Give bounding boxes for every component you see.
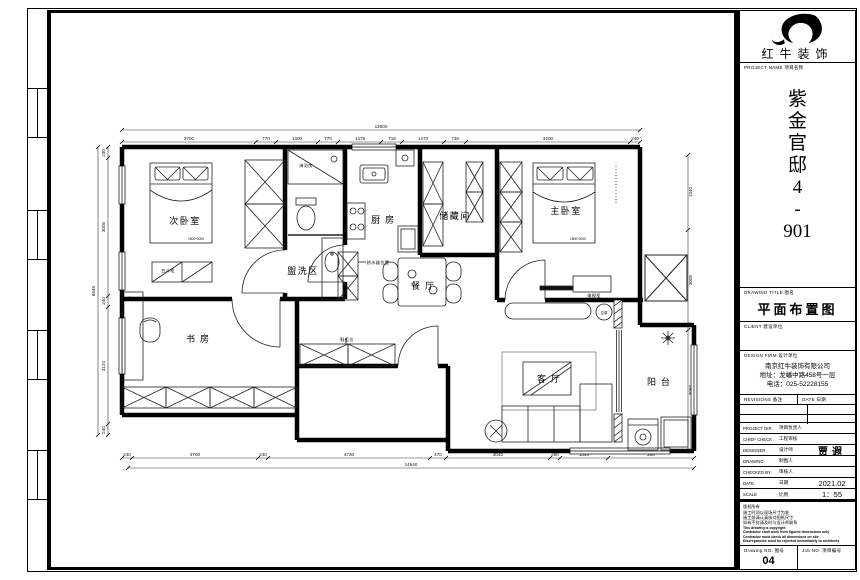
firm-phone: 电话：025-52228155 xyxy=(740,380,855,389)
row-project-dir: PROJECT DIR.项目负责人 xyxy=(740,423,855,434)
svg-text:3200: 3200 xyxy=(543,136,554,141)
svg-text:1470: 1470 xyxy=(418,136,429,141)
stove xyxy=(347,203,365,239)
revisions-header: REVISIONS 备注 DATE 日期 xyxy=(740,395,855,405)
row-designer: DESIGNER设计师贾遐 xyxy=(740,445,855,456)
elevator-shaft xyxy=(645,255,687,301)
study-desk xyxy=(122,292,160,380)
dim-top-total: 13000 xyxy=(375,124,388,129)
logo-section: 红牛装饰 xyxy=(740,11,855,63)
label-chest: 五斗柜 xyxy=(161,267,174,274)
svg-text:770: 770 xyxy=(262,136,270,141)
project-name: 紫 金 官 邸 4 - 901 xyxy=(740,89,855,283)
bed-master xyxy=(533,163,595,243)
notes-section: 版权所有 施工时须以现场尺寸为准 施工前请认真核对图纸尺寸 如有不符请及时与设计… xyxy=(740,500,855,546)
sofa xyxy=(502,384,612,442)
firm-address: 地址：龙蟠中路458号一层 xyxy=(740,371,855,380)
tv-cabinet-master xyxy=(540,276,611,292)
svg-text:240: 240 xyxy=(259,452,267,457)
client-section: CLIENT 建设单位 xyxy=(740,322,855,352)
svg-text:3700: 3700 xyxy=(184,136,195,141)
label-desk: 写字台 xyxy=(127,295,140,302)
shower xyxy=(288,150,343,184)
drawing-number: 04 xyxy=(740,555,797,567)
room-study: 书房 xyxy=(186,333,214,344)
designer-signature: 贾遐 xyxy=(809,443,855,458)
svg-text:748: 748 xyxy=(451,136,459,141)
room-living: 客厅 xyxy=(537,373,565,384)
drawing-title-section: DRAWING TITLE 图名 平面布置图 xyxy=(740,288,855,322)
svg-text:470: 470 xyxy=(434,452,442,457)
svg-text:240: 240 xyxy=(101,297,106,305)
design-firm-label: DESIGN FIRM 设计单位 xyxy=(740,351,855,359)
bookshelf xyxy=(122,387,297,408)
design-firm-info: 南京红牛装饰有限公司 地址：龙蟠中路458号一层 电话：025-52228155 xyxy=(740,362,855,389)
label-tvcab: 电视柜 xyxy=(587,292,600,299)
row-drawing: DRAWING制图人 xyxy=(740,456,855,467)
scale-value: 1：55 xyxy=(809,489,855,500)
bull-logo-icon xyxy=(770,13,826,45)
design-firm-section: DESIGN FIRM 设计单位 南京红牛装饰有限公司 地址：龙蟠中路458号一… xyxy=(740,351,855,395)
room-balcony: 阳台 xyxy=(647,376,675,387)
wardrobe-master xyxy=(500,162,522,252)
revisions-section: REVISIONS 备注 DATE 日期 xyxy=(740,395,855,423)
svg-text:3005: 3005 xyxy=(688,274,693,285)
binding-cell xyxy=(28,330,47,380)
dim-bottom-total: 14640 xyxy=(405,462,418,467)
company-logo-text: 红牛装饰 xyxy=(761,45,833,62)
label-bed2-size: 1500*2000 xyxy=(188,237,204,241)
room-dining: 餐厅 xyxy=(411,280,439,291)
shoe-cabinet xyxy=(300,338,395,366)
washing-machine xyxy=(628,419,658,450)
room-wash: 盥洗区 xyxy=(287,265,319,276)
project-section: PROJECT NAME 项目名称 紫 金 官 邸 4 - 901 xyxy=(740,63,855,288)
label-ac: 空调 xyxy=(601,310,608,315)
drawing-sheet: 13000 3700 770 1400 770 1475 718 1470 74… xyxy=(0,0,860,580)
row-date: DATE日期2021.02 xyxy=(740,478,855,489)
row-scale: SCALE比例1：55 xyxy=(740,489,855,500)
date-value: 2021.02 xyxy=(809,479,855,488)
sliding-door xyxy=(614,300,622,442)
svg-text:240: 240 xyxy=(101,426,106,434)
plant-icon xyxy=(661,331,675,345)
drawing-title-label: DRAWING TITLE 图名 xyxy=(740,288,855,296)
binding-strip xyxy=(28,10,48,570)
svg-text:240: 240 xyxy=(123,452,131,457)
binding-cell xyxy=(28,450,47,500)
svg-text:770: 770 xyxy=(324,136,332,141)
dim-left-total: 6845 xyxy=(91,285,96,296)
label-shoe: 鞋柜位 xyxy=(340,336,353,343)
balcony-cabinet xyxy=(661,417,691,450)
room-master: 主卧室 xyxy=(550,205,582,216)
kitchen-sink xyxy=(360,165,388,183)
console-table xyxy=(505,303,591,319)
drawing-title: 平面布置图 xyxy=(740,299,855,318)
room-kitchen: 厨房 xyxy=(371,214,399,225)
toilet xyxy=(296,198,316,230)
firm-name: 南京红牛装饰有限公司 xyxy=(740,362,855,371)
room-bedroom2: 次卧室 xyxy=(169,215,201,226)
project-name-label: PROJECT NAME 项目名称 xyxy=(740,63,855,71)
side-stool xyxy=(485,420,507,442)
svg-text:1340: 1340 xyxy=(688,186,693,197)
furniture-labels: 淋浴房 五斗柜 写字台 鞋柜位 热水器位置 电视柜 空调 1500*2000 1… xyxy=(127,162,608,343)
svg-text:3700: 3700 xyxy=(190,452,201,457)
svg-text:3005: 3005 xyxy=(101,221,106,232)
label-shower: 淋浴房 xyxy=(299,162,312,169)
title-block: 红牛装饰 PROJECT NAME 项目名称 紫 金 官 邸 4 - 901 D… xyxy=(737,10,856,570)
svg-text:3120: 3120 xyxy=(101,360,106,371)
range-hood xyxy=(396,150,414,166)
svg-text:240: 240 xyxy=(101,149,106,157)
floor-plan: 13000 3700 770 1400 770 1475 718 1470 74… xyxy=(48,10,737,570)
svg-text:240: 240 xyxy=(631,136,639,141)
svg-text:1400: 1400 xyxy=(292,136,303,141)
drawing-no-cell: Drawing NO. 图号 04 xyxy=(740,546,797,569)
bed-secondary xyxy=(150,163,212,243)
label-heater: 热水器位置 xyxy=(367,259,389,266)
wardrobe-secondary xyxy=(245,160,285,248)
label-bed1-size: 1800*2000 xyxy=(570,237,586,241)
heater-cabinet xyxy=(338,252,366,300)
revision-row xyxy=(740,405,855,415)
svg-text:718: 718 xyxy=(388,136,396,141)
personnel-section: PROJECT DIR.项目负责人 CHIEF CHECK工程审核 DESIGN… xyxy=(740,423,855,500)
svg-text:1475: 1475 xyxy=(355,136,366,141)
svg-text:4730: 4730 xyxy=(344,452,355,457)
binding-cell xyxy=(28,210,47,260)
numbers-section: Drawing NO. 图号 04 Job NO. 项目编号 xyxy=(740,546,855,569)
row-checked-by: CHECKED BY审核人 xyxy=(740,467,855,478)
client-label: CLIENT 建设单位 xyxy=(740,322,855,330)
storage-shelves xyxy=(423,162,483,246)
fridge xyxy=(398,226,418,252)
binding-cell xyxy=(28,88,47,138)
room-storage: 储藏间 xyxy=(439,210,471,221)
job-no-cell: Job NO. 项目编号 xyxy=(797,546,855,569)
